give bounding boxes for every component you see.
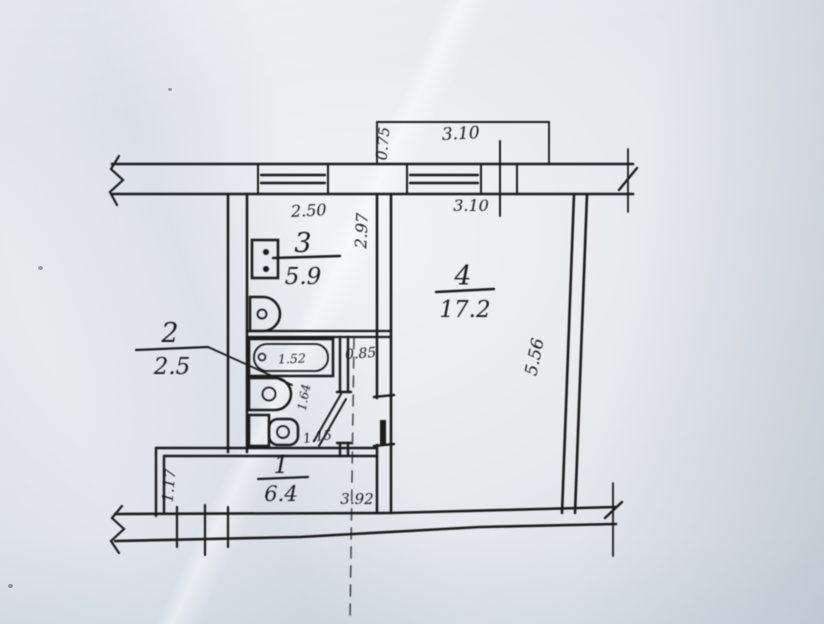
dim-bottom-span: 3.92 (340, 490, 373, 508)
dim-kitchen-depth: 2.97 (351, 212, 372, 250)
toilet-icon (249, 415, 298, 446)
wall-line (575, 194, 587, 513)
floor-plan-drawing: 3 5.9 4 17.2 2 2.5 1 6.4 3.10 0.75 2.50 … (0, 0, 824, 624)
room2-number: 2 (160, 318, 178, 349)
room3-number: 3 (294, 228, 311, 259)
living-room-right-wall (562, 194, 587, 513)
washbasin-bowl (263, 388, 276, 401)
dim-washbasin: 1.64 (295, 383, 313, 412)
wall-line (562, 194, 574, 513)
dim-balcony-width: 3.10 (441, 123, 480, 145)
stove-burner (263, 249, 269, 255)
toilet-bowl (269, 419, 298, 445)
dim-balcony-depth: 0.75 (373, 126, 394, 161)
dim-bathtub-length: 1.52 (278, 351, 306, 367)
room4-number: 4 (453, 261, 471, 292)
room1-number: 1 (273, 451, 288, 479)
paper-speck (8, 584, 13, 588)
paper-fold-line (350, 338, 354, 622)
washbasin-icon (249, 378, 291, 410)
sink-drain (258, 310, 267, 319)
dim-hall-side: 1.17 (159, 468, 180, 503)
room3-area: 5.9 (285, 264, 322, 290)
kitchen-sink-icon (250, 297, 280, 331)
paper-speck (38, 266, 43, 270)
washbasin-outline (249, 378, 291, 410)
room4-area: 17.2 (439, 297, 490, 323)
bathtub-drain (259, 354, 266, 361)
stove-burner (263, 266, 269, 272)
dim-living-depth: 5.56 (521, 336, 548, 377)
left-partition-wall (228, 194, 247, 452)
dim-corridor-width: 0.85 (345, 345, 377, 363)
scanned-floor-plan-page: 3 5.9 4 17.2 2 2.5 1 6.4 3.10 0.75 2.50 … (0, 0, 824, 624)
dim-kitchen-window: 2.50 (289, 200, 327, 221)
dim-living-window: 3.10 (453, 196, 489, 215)
toilet-tank (249, 415, 269, 446)
door-leaf-mark (380, 420, 386, 446)
hall-top-wall (156, 448, 377, 456)
wall-line (115, 507, 616, 514)
bathroom-top-wall (247, 331, 391, 337)
kitchen-living-partition-wall (374, 194, 394, 513)
room2-area: 2.5 (153, 354, 191, 380)
sink-outline (250, 297, 280, 331)
paper-speck (168, 88, 172, 91)
dim-toilet: 1.15 (302, 428, 333, 447)
toilet-bowl-inner (277, 426, 289, 438)
room1-area: 6.4 (264, 482, 297, 506)
wall-line (115, 524, 616, 541)
kitchen-window (258, 164, 328, 194)
